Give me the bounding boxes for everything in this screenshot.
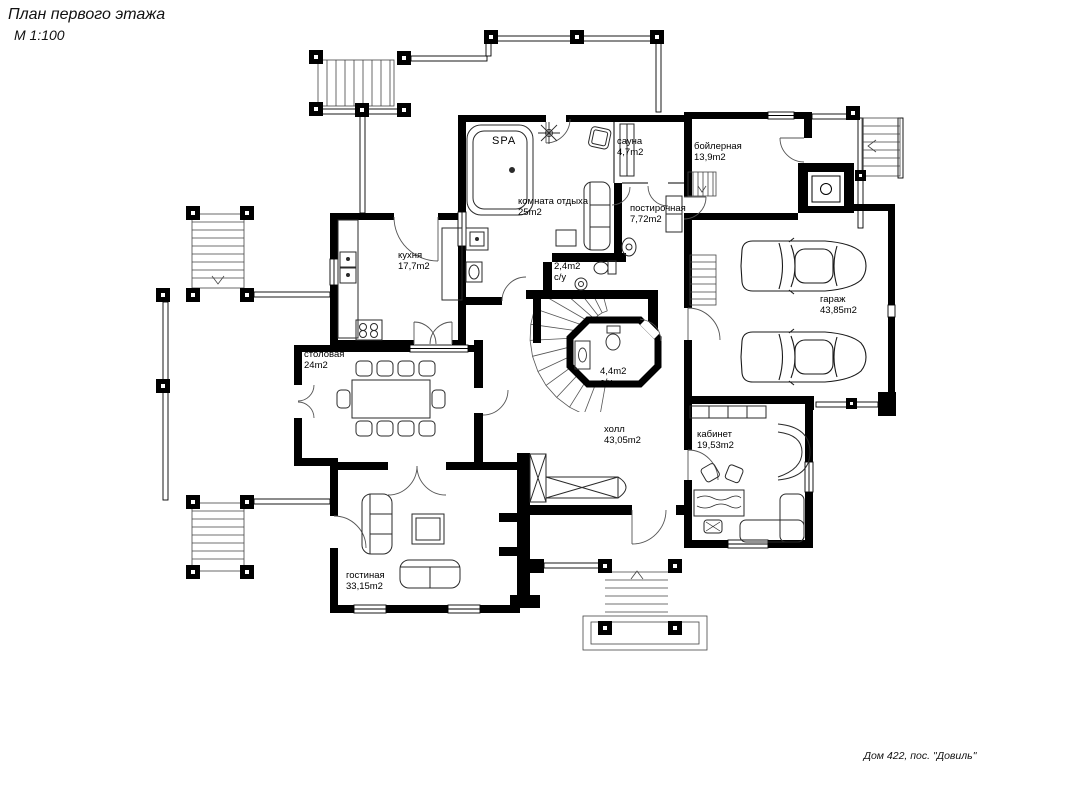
drawing-title: План первого этажа М 1:100: [8, 6, 165, 43]
car-bottom: [741, 329, 866, 385]
room-label-kitchen: кухня17,7m2: [398, 250, 430, 272]
room-label-wc-hall: 4,4m2с/у: [600, 366, 626, 388]
interior-stairs: [688, 172, 716, 305]
dining-table: [337, 361, 445, 436]
floor-plan-page: План первого этажа М 1:100 SPA сауна4,7m…: [0, 0, 1070, 800]
room-label-laundry: постирочная7,72m2: [630, 203, 686, 225]
room-label-living: гостиная33,15m2: [346, 570, 385, 592]
room-label-boiler: бойлерная13,9m2: [694, 141, 742, 163]
room-label-lounge: комната отдыха25m2: [518, 196, 588, 218]
room-label-garage: гараж43,85m2: [820, 294, 857, 316]
door-arcs: [298, 119, 804, 548]
floor-plan-drawing: [0, 0, 1070, 800]
room-label-office: кабинет19,53m2: [697, 429, 734, 451]
car-top: [741, 238, 866, 294]
room-label-dining: столовая24m2: [304, 349, 344, 371]
room-label-spa: SPA: [492, 136, 516, 147]
room-label-wc-small: 2,4m2с/у: [554, 261, 580, 283]
room-label-hall: холл43,05m2: [604, 424, 641, 446]
title-scale: М 1:100: [14, 27, 165, 43]
title-line1: План первого этажа: [8, 6, 165, 24]
plant-icon: [538, 122, 560, 144]
project-caption: Дом 422, пос. "Довиль": [810, 750, 1030, 762]
room-label-sauna: сауна4,7m2: [617, 136, 643, 158]
chimney-shaft: [808, 172, 844, 206]
